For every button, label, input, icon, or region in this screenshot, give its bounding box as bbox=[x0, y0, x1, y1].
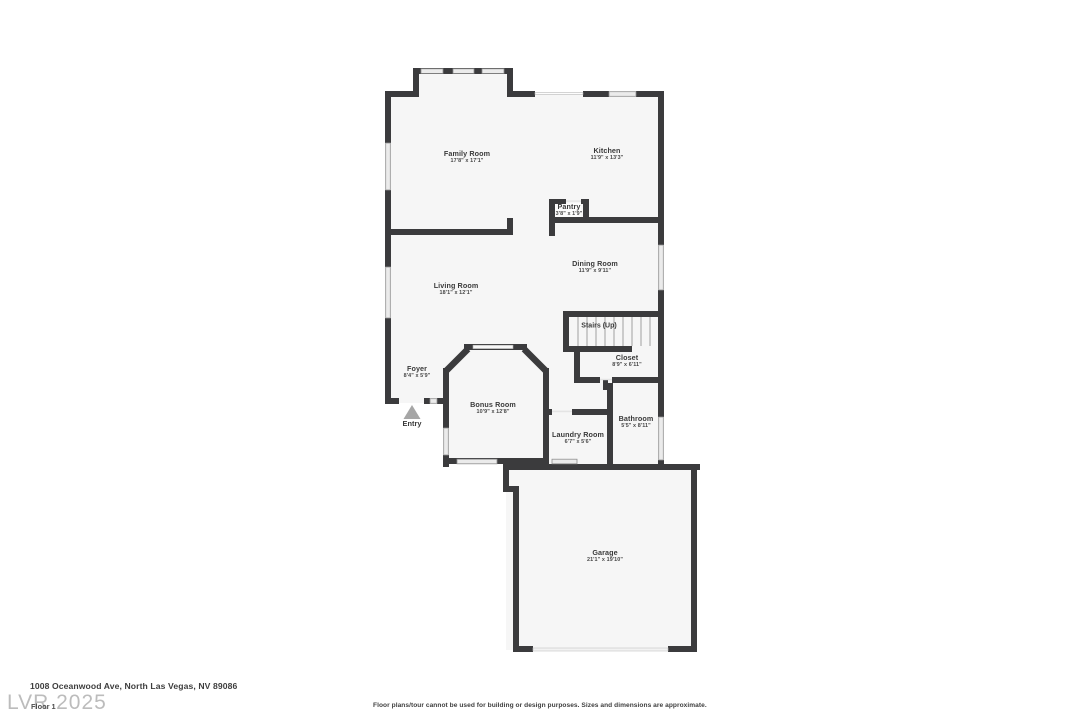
entry-label: Entry bbox=[403, 419, 422, 429]
room-label-foyer: Foyer 8'4" x 5'9" bbox=[404, 364, 431, 380]
lvr-watermark: LVR 2025 bbox=[7, 691, 107, 715]
floor-number-label: Floor 1 bbox=[31, 702, 56, 711]
room-label-pantry: Pantry 3'8" x 1'9" bbox=[556, 202, 583, 218]
garage-door bbox=[533, 648, 668, 651]
disclaimer-text: Floor plans/tour cannot be used for buil… bbox=[373, 702, 707, 709]
room-label-stairs: Stairs (Up) bbox=[581, 321, 616, 330]
room-label-dining-room: Dining Room 11'9" x 9'11" bbox=[572, 259, 618, 275]
room-label-closet: Closet 8'9" x 6'11" bbox=[612, 353, 642, 369]
room-label-laundry-room: Laundry Room 6'7" x 5'6" bbox=[552, 430, 604, 446]
room-label-living-room: Living Room 18'1" x 12'1" bbox=[434, 281, 479, 297]
room-label-bathroom: Bathroom 5'5" x 8'11" bbox=[619, 414, 654, 430]
floor-areas bbox=[388, 71, 694, 650]
property-address: 1008 Oceanwood Ave, North Las Vegas, NV … bbox=[30, 681, 237, 691]
floor-plan-page: Family Room 17'8" x 17'1" Kitchen 11'9" … bbox=[0, 0, 1086, 724]
room-label-garage: Garage 21'1" x 19'10" bbox=[587, 548, 623, 564]
room-label-family-room: Family Room 17'8" x 17'1" bbox=[444, 149, 490, 165]
floor-plan-drawing bbox=[0, 0, 1086, 724]
room-label-kitchen: Kitchen 11'9" x 13'3" bbox=[591, 146, 624, 162]
entry-arrow-icon bbox=[404, 405, 421, 419]
room-label-bonus-room: Bonus Room 10'9" x 12'8" bbox=[470, 400, 516, 416]
